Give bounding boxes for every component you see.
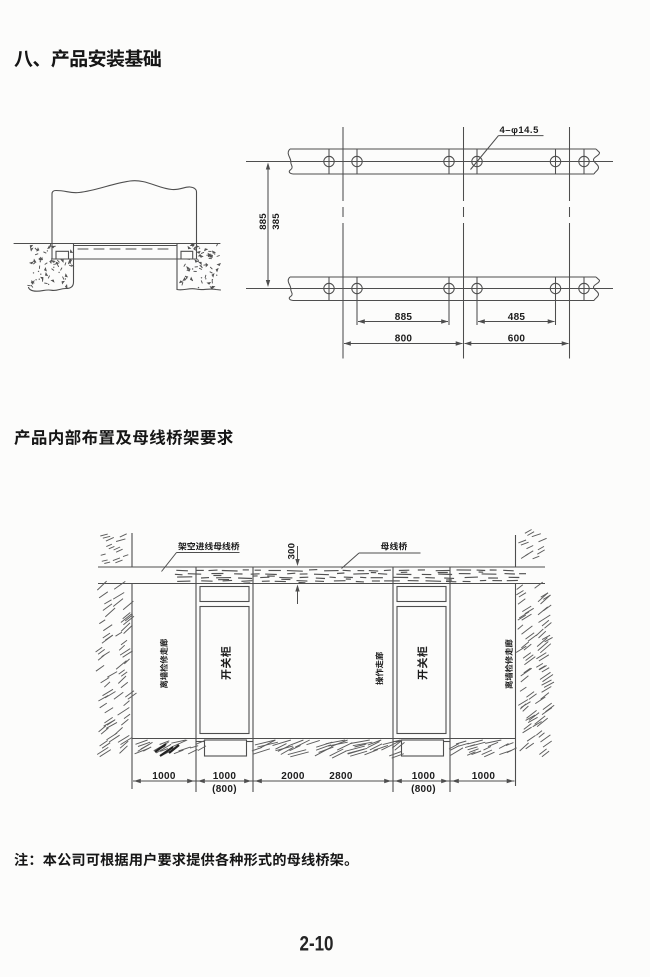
- svg-text:885: 885: [395, 312, 413, 323]
- svg-text:2800: 2800: [329, 771, 353, 782]
- svg-text:4–φ14.5: 4–φ14.5: [500, 125, 540, 136]
- svg-text:300: 300: [287, 543, 298, 560]
- svg-text:485: 485: [508, 312, 526, 323]
- svg-text:1000: 1000: [213, 771, 237, 782]
- svg-text:(800): (800): [212, 784, 237, 795]
- svg-text:1000: 1000: [152, 771, 176, 782]
- svg-text:(800): (800): [411, 784, 436, 795]
- svg-text:800: 800: [395, 333, 413, 344]
- svg-text:600: 600: [508, 333, 526, 344]
- svg-text:2000: 2000: [281, 771, 305, 782]
- svg-text:885: 885: [258, 213, 269, 230]
- svg-text:1000: 1000: [412, 771, 436, 782]
- svg-text:1000: 1000: [472, 771, 496, 782]
- svg-text:385: 385: [271, 213, 282, 230]
- svg-text:2-10: 2-10: [300, 933, 334, 956]
